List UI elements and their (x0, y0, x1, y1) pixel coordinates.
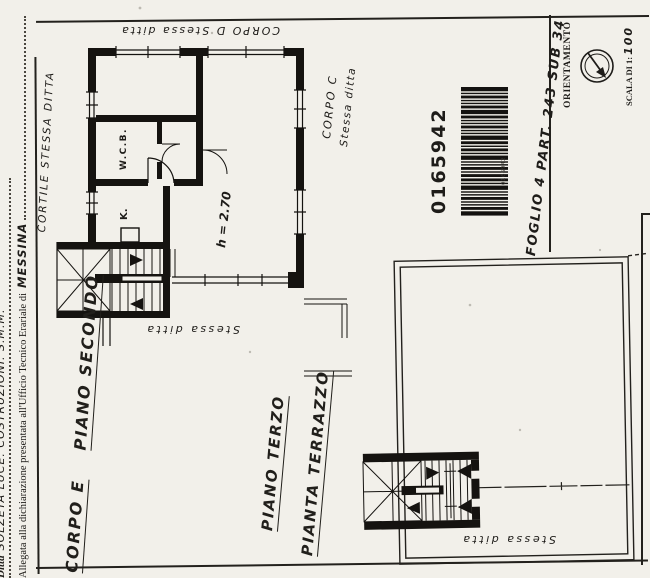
scale-value: 100 (622, 26, 635, 55)
terrace-stair-details (363, 460, 468, 522)
orientation-title: ORIENTAMENTO (563, 28, 573, 108)
barcode-number: 0165942 (428, 92, 450, 214)
terrace-plan-linework (359, 253, 650, 564)
kitchen-room-label: K. (119, 196, 130, 220)
scanned-cadastral-plan-page: { "margin_notes": { "ditta_label": "Ditt… (0, 0, 650, 576)
scale-label: SCALA DI 1: 100 (622, 26, 635, 106)
terrace-stessa-ditta-label: Stessa ditta (436, 533, 556, 546)
wc-room-label: W.C.B. (119, 118, 129, 170)
upper-plan-stessa-ditta-label: Stessa ditta (110, 323, 240, 336)
terrace-party-wall-line (479, 481, 629, 492)
barcode-number-small: 0165942 (501, 139, 507, 185)
corpo-d-label: CORPO D Stessa ditta (100, 24, 280, 37)
compass-icon (581, 50, 613, 82)
scale-prefix: SCALA DI 1: (624, 57, 634, 106)
